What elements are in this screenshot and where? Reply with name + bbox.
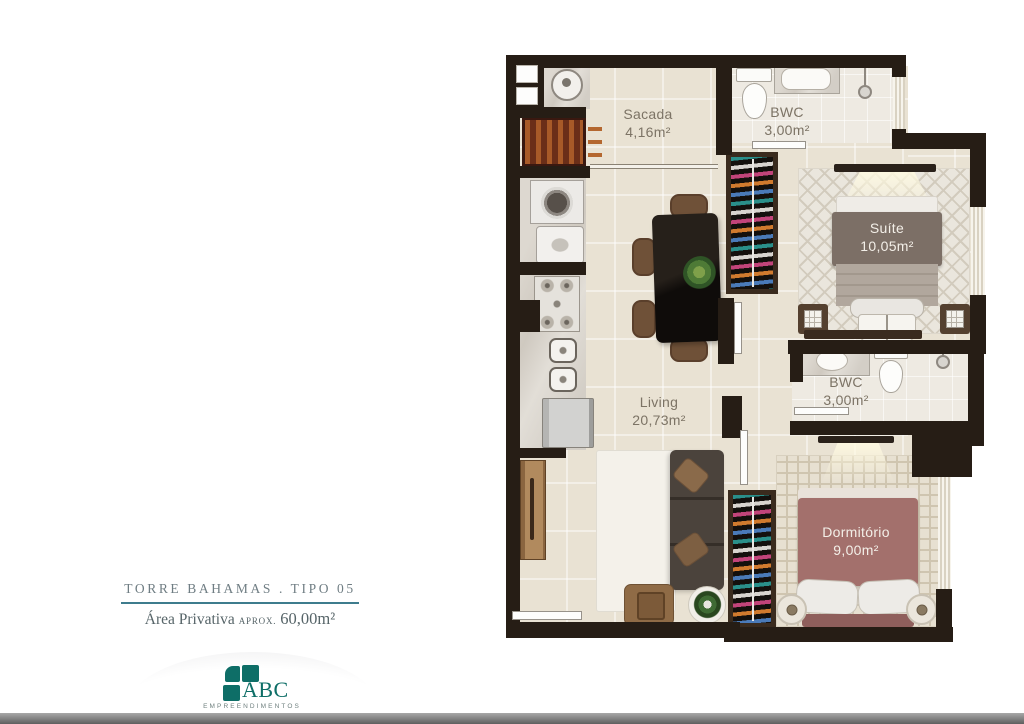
suite-lamp-right — [946, 310, 964, 328]
room-label-living: Living 20,73m² — [632, 394, 685, 429]
sacada-slider-track — [590, 164, 718, 169]
dorm-wall-light — [818, 436, 894, 443]
room-name-bwc-mid: BWC — [823, 374, 868, 392]
grill-vent-2 — [588, 140, 602, 144]
suite-lamp-left — [804, 310, 822, 328]
suite-wardrobe-rod — [752, 159, 754, 287]
wall-bwc-top-right-a — [892, 55, 906, 77]
room-name-living: Living — [632, 394, 685, 412]
title-divider — [121, 602, 359, 604]
wall-dorm-corner — [912, 421, 972, 477]
dorm-nightstand-right — [906, 594, 937, 625]
room-label-dormitorio: Dormitório 9,00m² — [822, 524, 890, 559]
suite-nightstand-right — [940, 304, 970, 334]
glass-block-1 — [516, 65, 538, 83]
grill-vent-3 — [588, 153, 602, 157]
floor-plan-page: Sacada 4,16m² BWC 3,00m² Suíte 10,05m² L… — [0, 0, 1024, 724]
wall-step-top-right — [892, 133, 986, 149]
wall-kitchen-step-1 — [520, 262, 586, 275]
bwc-top-toilet-tank — [736, 68, 772, 82]
private-area-qualifier: APROX. — [239, 616, 277, 626]
room-area-dormitorio: 9,00m² — [822, 542, 890, 560]
wall-dorm-bottom — [724, 627, 953, 642]
dorm-wardrobe-rod — [752, 497, 754, 621]
grill-vent-1 — [588, 127, 602, 131]
wall-hall-b — [722, 396, 742, 438]
private-area-label: Área Privativa — [145, 611, 235, 628]
sideboard-handle — [530, 478, 534, 540]
logo-subtitle: EMPREENDIMENTOS — [203, 703, 301, 710]
refrigerator — [542, 398, 594, 448]
room-name-dormitorio: Dormitório — [822, 524, 890, 542]
wall-bwc-mid-bottom — [790, 421, 914, 435]
kitchen-double-sink — [546, 336, 582, 394]
dorm-door — [740, 430, 748, 485]
wall-suite-right-a — [970, 149, 986, 207]
room-label-sacada: Sacada 4,16m² — [623, 106, 672, 141]
wall-sacada-right — [716, 55, 732, 155]
wall-hall-a — [718, 298, 734, 364]
room-area-bwc-mid: 3,00m² — [823, 392, 868, 410]
wall-top — [506, 55, 906, 68]
plan-title: TORRE BAHAMAS . TIPO 05 — [124, 581, 355, 597]
private-area-value: 60,00m² — [280, 609, 335, 628]
room-area-bwc-top: 3,00m² — [764, 122, 809, 140]
bwc-top-window — [893, 77, 905, 129]
wall-left — [506, 55, 520, 638]
sink-bowl-1 — [549, 338, 577, 363]
balcony-sink-faucet — [562, 78, 571, 87]
wall-bwc-mid-left — [790, 340, 803, 382]
living-plant — [693, 590, 722, 619]
wall-kitchen-step-3 — [510, 448, 566, 458]
logo-mark-tile-1 — [225, 666, 240, 682]
dorm-nightstand-left — [776, 594, 807, 625]
bwc-top-shower-hose — [864, 66, 866, 86]
glass-block-2 — [516, 87, 538, 105]
room-area-living: 20,73m² — [632, 412, 685, 430]
logo-mark-tile-3 — [223, 685, 240, 701]
wall-grill-bottom — [520, 166, 590, 178]
suite-door — [734, 302, 742, 354]
entry-door — [512, 611, 582, 620]
room-name-sacada: Sacada — [623, 106, 672, 124]
wall-living-bottom — [506, 622, 740, 638]
dorm-window — [938, 477, 951, 589]
bwc-top-tub — [781, 68, 831, 90]
laundry-tub — [536, 226, 584, 264]
dorm-bed-foot — [802, 614, 914, 627]
bottom-bar — [0, 713, 1024, 724]
dorm-lamp-right — [916, 604, 927, 615]
bwc-top-door — [752, 141, 806, 149]
suite-window — [971, 207, 985, 295]
room-label-bwc-mid: BWC 3,00m² — [823, 374, 868, 409]
sink-bowl-2 — [549, 367, 577, 392]
armchair-seat — [637, 592, 665, 620]
table-centerpiece-plant — [683, 256, 719, 292]
room-label-suite: Suíte 10,05m² — [860, 220, 913, 255]
dorm-wardrobe — [728, 490, 776, 628]
bwc-mid-shower-head — [936, 355, 950, 369]
wall-suite-bottom — [788, 340, 986, 354]
room-area-sacada: 4,16m² — [623, 124, 672, 142]
suite-wardrobe — [726, 152, 778, 294]
room-name-bwc-top: BWC — [764, 104, 809, 122]
wall-nook-bottom — [520, 107, 586, 118]
room-label-bwc-top: BWC 3,00m² — [764, 104, 809, 139]
private-area-line: Área Privativa APROX. 60,00m² — [145, 609, 335, 629]
washing-machine — [530, 180, 584, 224]
barbecue-grill — [522, 117, 586, 167]
dorm-lamp-left — [786, 604, 797, 615]
room-area-suite: 10,05m² — [860, 238, 913, 256]
logo-wordmark: ABC — [242, 677, 289, 703]
stove-cooktop — [534, 276, 580, 332]
suite-dresser — [804, 330, 922, 339]
wall-kitchen-step-2 — [506, 300, 540, 332]
room-name-suite: Suíte — [860, 220, 913, 238]
suite-wall-light — [834, 164, 936, 172]
bwc-top-shower-head — [858, 85, 872, 99]
